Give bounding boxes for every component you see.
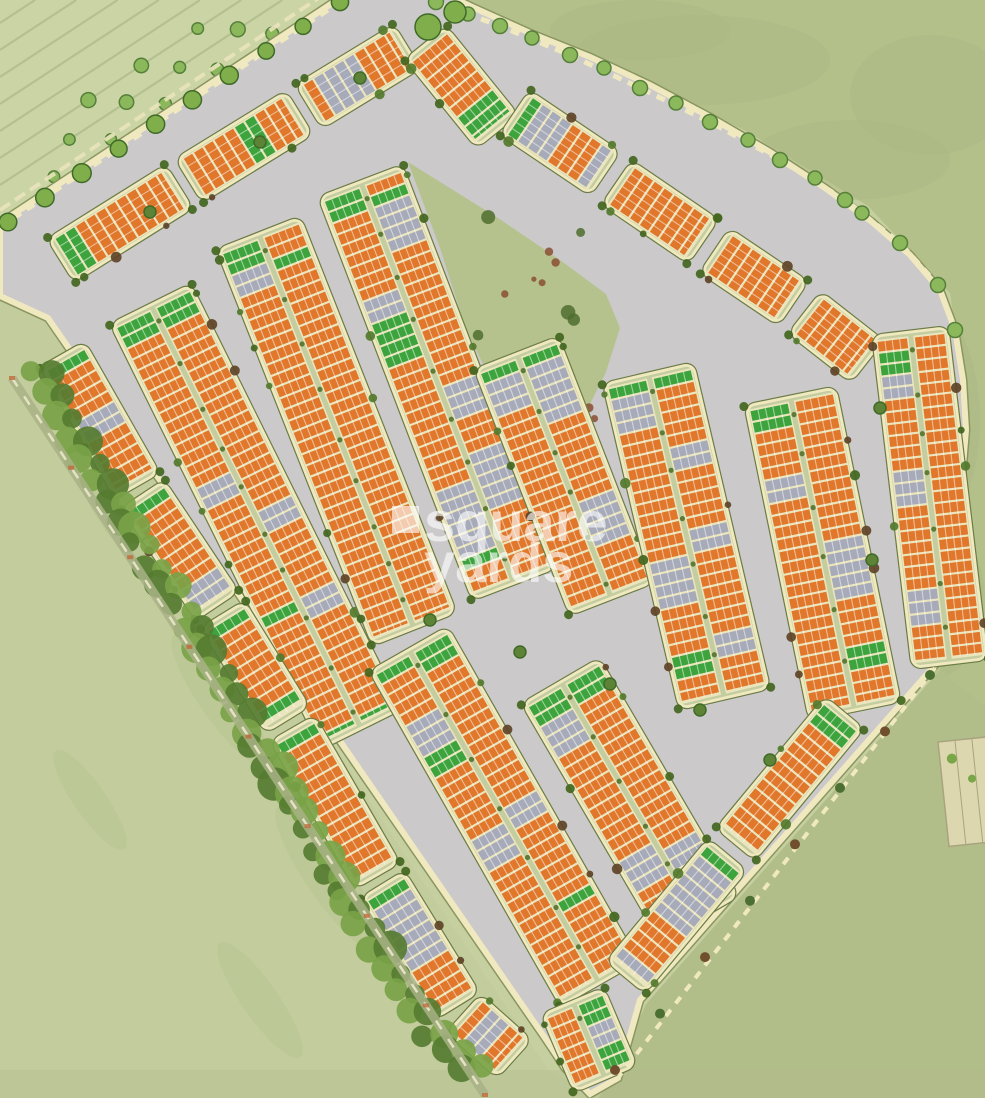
svg-text:yards: yards — [424, 531, 573, 594]
